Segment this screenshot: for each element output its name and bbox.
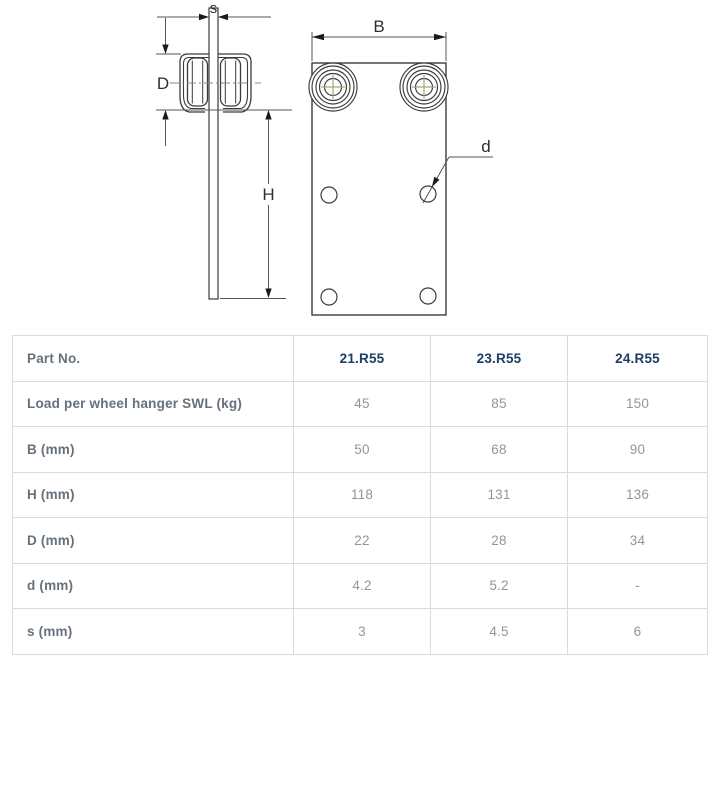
table-row: H (mm)118131136 (13, 473, 707, 519)
row-value: 4.5 (431, 609, 568, 654)
dim-label-d: d (481, 137, 490, 156)
row-value: 45 (294, 382, 431, 427)
table-row: B (mm)506890 (13, 427, 707, 473)
side-wheel-left (188, 58, 208, 106)
row-label: d (mm) (13, 564, 294, 609)
hole-top-left (321, 187, 337, 203)
row-value: 4.2 (294, 564, 431, 609)
table-row: Load per wheel hanger SWL (kg)4585150 (13, 382, 707, 428)
row-label: H (mm) (13, 473, 294, 518)
row-value: 90 (568, 427, 707, 472)
row-value: 28 (431, 518, 568, 563)
row-value: 85 (431, 382, 568, 427)
part-no-header: Part No. (13, 336, 294, 381)
hole-bottom-right (420, 288, 436, 304)
row-value: 136 (568, 473, 707, 518)
front-view: B d (309, 17, 493, 315)
front-wheel-left (309, 63, 357, 111)
hole-bottom-left (321, 289, 337, 305)
hanger-plate-side (209, 8, 218, 299)
row-label: D (mm) (13, 518, 294, 563)
front-wheel-right (400, 63, 448, 111)
row-value: 5.2 (431, 564, 568, 609)
row-value: 118 (294, 473, 431, 518)
row-value: 6 (568, 609, 707, 654)
page: s D H (0, 0, 720, 800)
part-number-21R55: 21.R55 (294, 336, 431, 381)
row-value: - (568, 564, 707, 609)
side-wheel-right (221, 58, 241, 106)
part-number-23R55: 23.R55 (431, 336, 568, 381)
row-label: B (mm) (13, 427, 294, 472)
row-value: 68 (431, 427, 568, 472)
row-value: 131 (431, 473, 568, 518)
technical-drawing: s D H (0, 0, 720, 332)
row-value: 50 (294, 427, 431, 472)
row-label: Load per wheel hanger SWL (kg) (13, 382, 294, 427)
dimension-H (220, 110, 286, 299)
row-value: 22 (294, 518, 431, 563)
table-row: s (mm)34.56 (13, 609, 707, 654)
table-header-row: Part No. 21.R55 23.R55 24.R55 (13, 336, 707, 382)
part-number-24R55: 24.R55 (568, 336, 707, 381)
table-row: D (mm)222834 (13, 518, 707, 564)
row-label: s (mm) (13, 609, 294, 654)
side-view: s D H (156, 0, 292, 299)
dimension-B (312, 32, 446, 61)
row-value: 150 (568, 382, 707, 427)
table-body: Load per wheel hanger SWL (kg)4585150B (… (13, 382, 707, 654)
dim-label-B: B (373, 17, 384, 36)
row-value: 34 (568, 518, 707, 563)
dim-label-H: H (262, 185, 274, 204)
dim-label-s: s (210, 0, 218, 17)
row-value: 3 (294, 609, 431, 654)
spec-table: Part No. 21.R55 23.R55 24.R55 Load per w… (12, 335, 708, 655)
table-row: d (mm)4.25.2- (13, 564, 707, 610)
dim-label-D: D (157, 74, 169, 93)
